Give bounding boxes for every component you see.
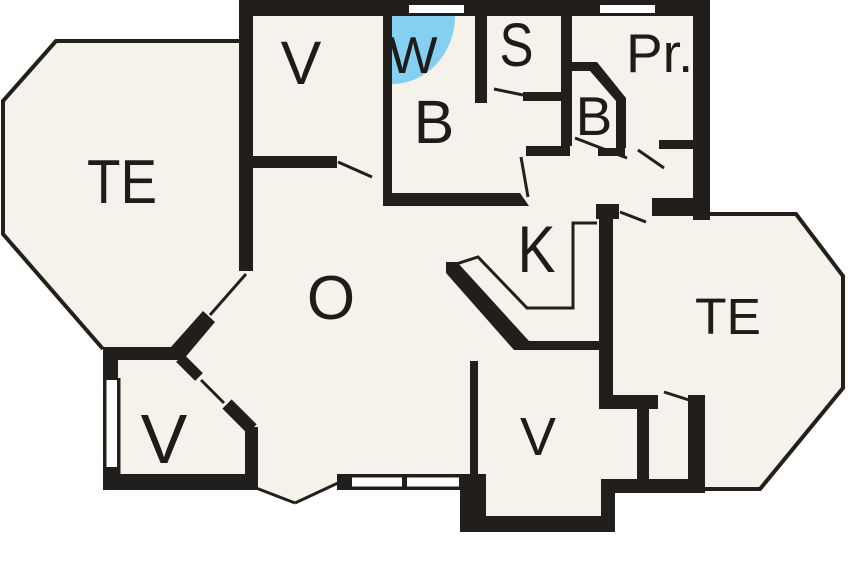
svg-text:Pr.: Pr. xyxy=(626,22,693,84)
svg-text:O: O xyxy=(307,264,355,333)
svg-text:V: V xyxy=(141,400,188,478)
svg-text:S: S xyxy=(500,11,534,79)
svg-text:V: V xyxy=(520,407,556,467)
svg-text:B: B xyxy=(576,85,613,147)
svg-text:TE: TE xyxy=(695,288,761,345)
svg-text:K: K xyxy=(518,212,556,286)
svg-text:W: W xyxy=(388,27,437,85)
svg-text:TE: TE xyxy=(87,148,157,217)
svg-text:V: V xyxy=(281,29,322,97)
svg-text:B: B xyxy=(414,88,455,156)
